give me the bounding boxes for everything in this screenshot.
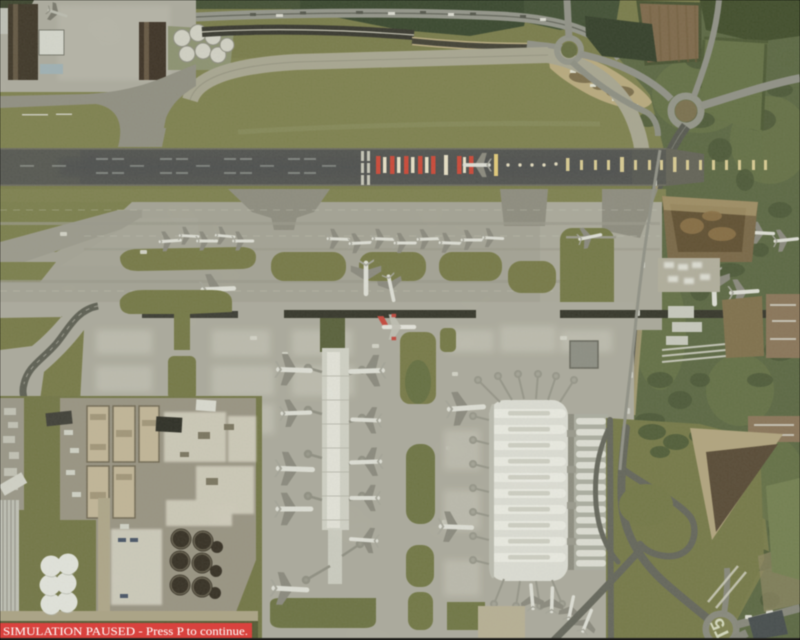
svg-text:SIMULATION PAUSED - Press P to: SIMULATION PAUSED - Press P to continue. — [3, 624, 248, 638]
